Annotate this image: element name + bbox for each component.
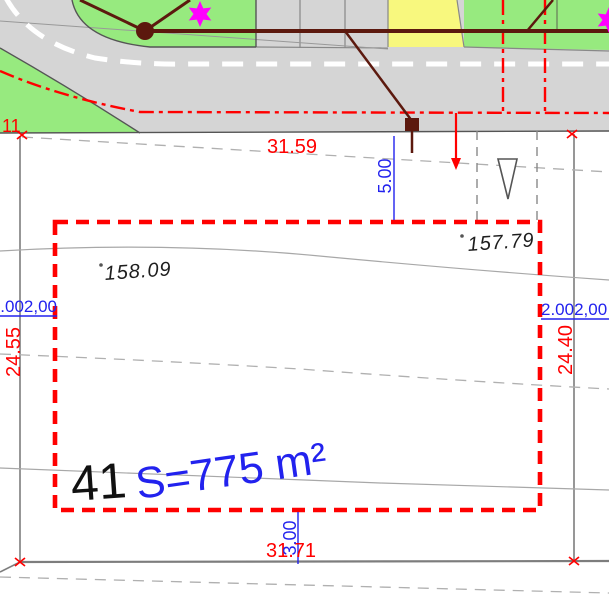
survey-triangle-icon [498,159,517,199]
yellow-area [388,0,464,47]
site-plan-canvas[interactable]: 11 31.59 31.71 24.55 24.40 5.00 3.00 2.0… [0,0,609,604]
utility-node-icon [136,22,154,40]
boundary-point-label: 11 [2,116,21,136]
spot-elevation-inner-label: 158.09 [104,258,173,285]
contour-lines [0,137,609,593]
parcel-number-label: 41 [69,452,128,512]
parcel-area-label: S=775 m² [133,434,330,509]
grid-label-right: 2.002,00 [541,300,607,319]
offset-bottom-label: 3.00 [280,520,300,555]
dim-right-label: 24.40 [555,325,577,375]
contour-dashed-bottom [0,577,609,593]
green-area-top-right [464,0,609,50]
spot-elevation-outer-label: 157.79 [467,229,536,256]
grid-label-left: 2.002,00 [0,297,57,316]
dim-left-label: 24.55 [3,327,25,377]
offset-top-label: 5.00 [375,158,395,193]
arrowhead-icon [451,158,461,170]
utility-box-icon [405,118,419,131]
contour-dashed-middle [0,354,609,389]
dim-top-label: 31.59 [267,136,317,158]
